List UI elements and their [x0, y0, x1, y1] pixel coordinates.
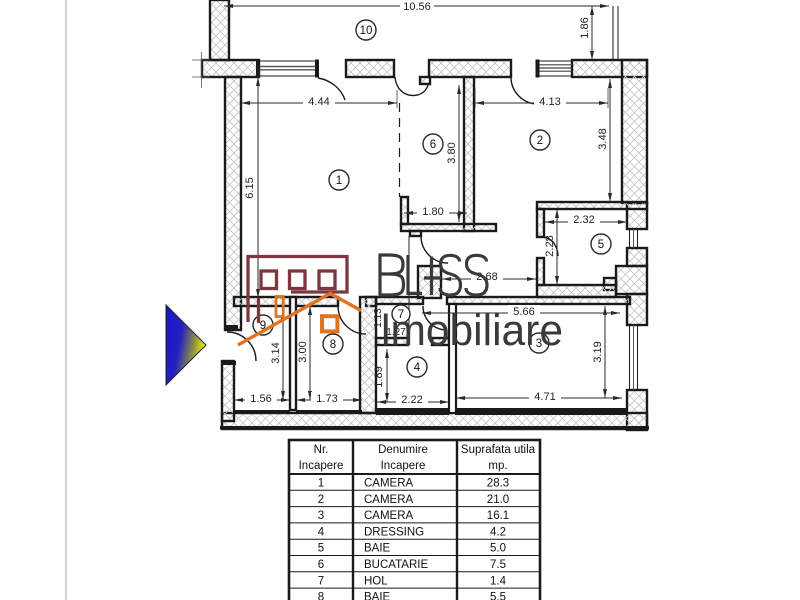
- svg-text:CAMERA: CAMERA: [364, 494, 414, 506]
- svg-text:Incapere: Incapere: [299, 460, 344, 472]
- svg-text:BUCATARIE: BUCATARIE: [364, 559, 428, 571]
- svg-text:16.1: 16.1: [487, 510, 509, 522]
- svg-text:6: 6: [318, 559, 324, 571]
- svg-text:3.19: 3.19: [592, 341, 604, 362]
- svg-text:10.56: 10.56: [403, 1, 431, 13]
- svg-text:4.13: 4.13: [539, 96, 560, 108]
- svg-text:2: 2: [537, 135, 543, 147]
- svg-text:BAIE: BAIE: [364, 543, 391, 555]
- svg-text:7.5: 7.5: [490, 559, 506, 571]
- svg-text:2.28: 2.28: [544, 235, 556, 256]
- svg-text:HOL: HOL: [364, 575, 388, 587]
- svg-text:3.00: 3.00: [297, 341, 309, 362]
- svg-text:2: 2: [318, 494, 324, 506]
- svg-text:5.0: 5.0: [490, 543, 506, 555]
- svg-text:1.56: 1.56: [250, 393, 271, 405]
- svg-text:lmobiliare: lmobiliare: [381, 306, 563, 355]
- svg-text:mp.: mp.: [488, 460, 507, 472]
- svg-text:Incapere: Incapere: [381, 460, 426, 472]
- svg-text:4.44: 4.44: [308, 96, 329, 108]
- svg-text:2.22: 2.22: [401, 394, 422, 406]
- svg-text:10: 10: [360, 25, 373, 37]
- svg-text:4: 4: [414, 362, 421, 374]
- svg-text:Denumire: Denumire: [378, 444, 428, 456]
- svg-text:8: 8: [318, 592, 324, 600]
- svg-text:4.71: 4.71: [534, 391, 555, 403]
- svg-text:Suprafata utila: Suprafata utila: [461, 444, 536, 456]
- svg-text:6: 6: [430, 139, 436, 151]
- svg-text:1: 1: [336, 175, 342, 187]
- svg-text:5: 5: [598, 239, 604, 251]
- svg-text:DRESSING: DRESSING: [364, 526, 424, 538]
- svg-text:3.48: 3.48: [597, 128, 609, 149]
- svg-text:4: 4: [318, 526, 325, 538]
- svg-text:3: 3: [318, 510, 324, 522]
- svg-text:6.15: 6.15: [244, 177, 256, 198]
- svg-text:1.89: 1.89: [373, 366, 385, 387]
- svg-text:28.3: 28.3: [487, 478, 509, 490]
- svg-text:7: 7: [318, 575, 324, 587]
- svg-text:1.86: 1.86: [579, 17, 591, 38]
- svg-text:2.32: 2.32: [573, 214, 594, 226]
- svg-text:4.2: 4.2: [490, 526, 506, 538]
- svg-text:21.0: 21.0: [487, 494, 509, 506]
- svg-text:1: 1: [318, 478, 324, 490]
- svg-text:1.80: 1.80: [422, 206, 443, 218]
- svg-text:3.80: 3.80: [446, 142, 458, 163]
- svg-text:1.73: 1.73: [316, 393, 337, 405]
- svg-text:1.4: 1.4: [490, 575, 507, 587]
- svg-text:CAMERA: CAMERA: [364, 510, 414, 522]
- svg-text:Nr.: Nr.: [314, 444, 329, 456]
- svg-text:5: 5: [318, 543, 324, 555]
- svg-text:8: 8: [330, 339, 336, 351]
- svg-text:CAMERA: CAMERA: [364, 478, 414, 490]
- svg-text:3.14: 3.14: [270, 342, 282, 363]
- svg-text:BAIE: BAIE: [364, 592, 391, 600]
- svg-text:5.5: 5.5: [490, 592, 506, 600]
